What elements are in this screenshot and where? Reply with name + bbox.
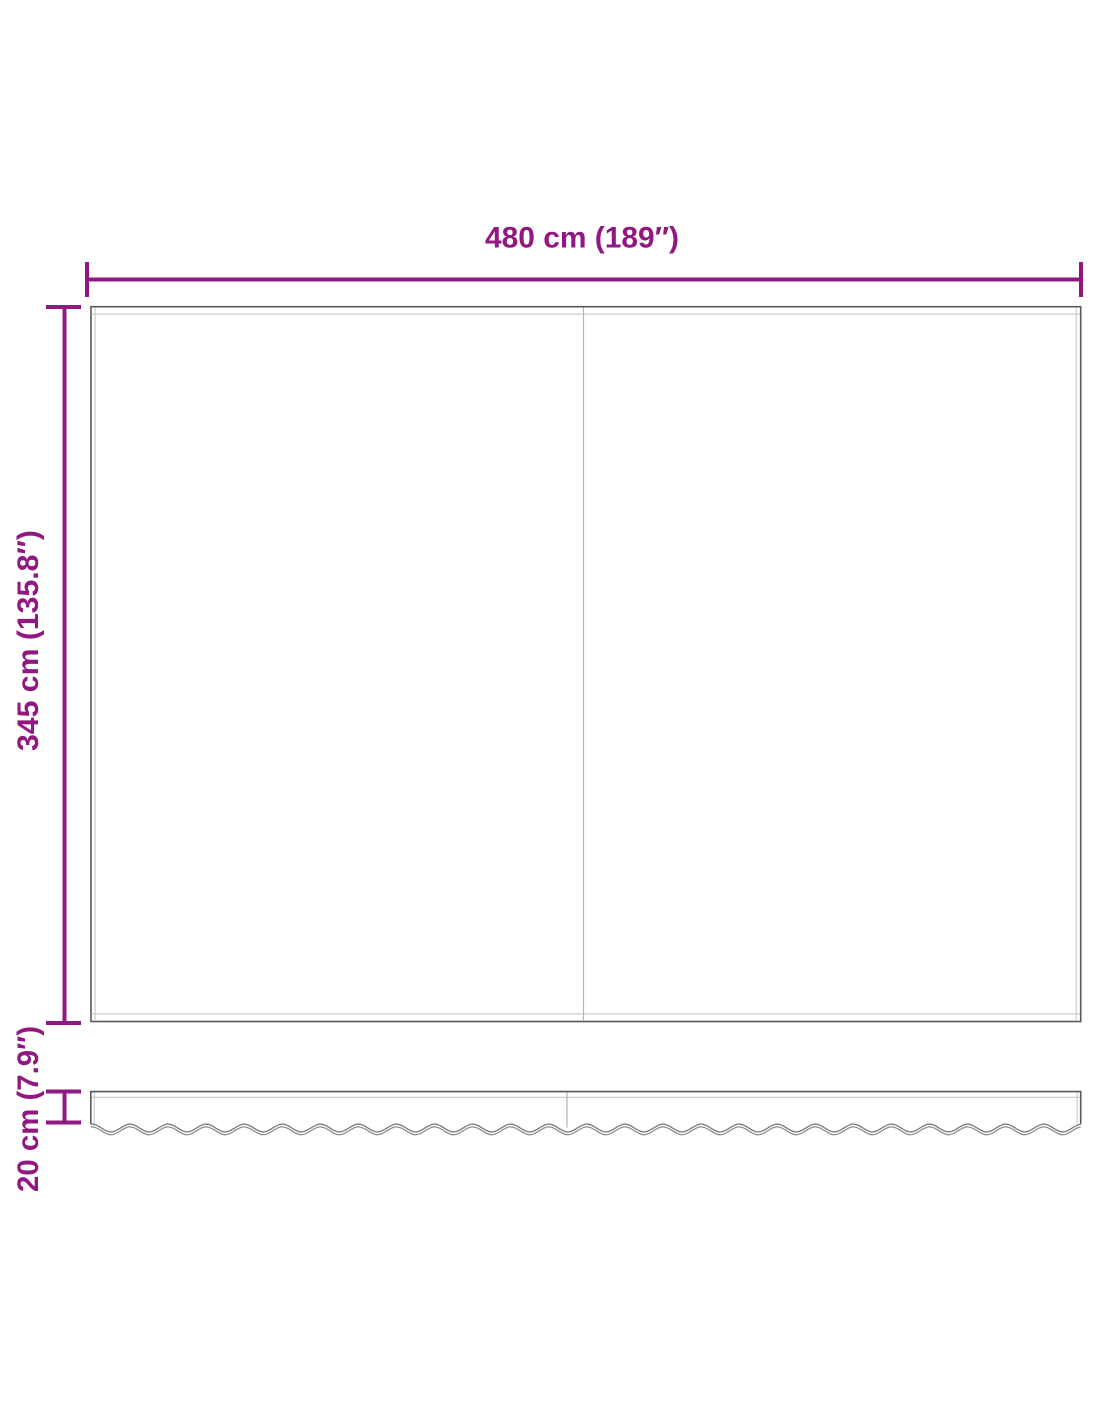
svg-text:345 cm (135.8″): 345 cm (135.8″) bbox=[12, 530, 45, 751]
svg-text:20 cm (7.9″): 20 cm (7.9″) bbox=[12, 1026, 45, 1192]
svg-text:480 cm (189″): 480 cm (189″) bbox=[485, 222, 679, 255]
